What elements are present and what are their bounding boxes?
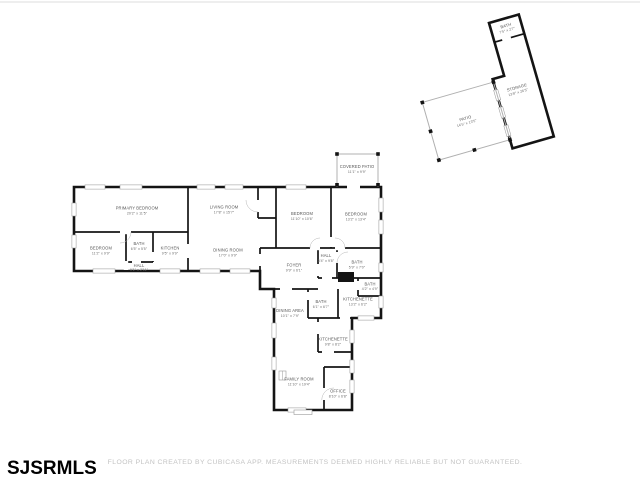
window <box>197 185 215 189</box>
room-dims: 11'2" x 9'9" <box>92 251 111 255</box>
room-name: OFFICE <box>330 389 346 394</box>
room-name: DINING ROOM <box>213 248 243 253</box>
window <box>350 330 354 343</box>
room-name: KITCHENETTE <box>343 297 373 302</box>
room-name: BATH <box>364 282 375 287</box>
room-dims: 3'4" x 9'8" <box>318 259 335 263</box>
room-name: HALL <box>321 253 332 258</box>
mls-logo: SJSRMLS <box>7 458 97 479</box>
room-dims: 4'2" x 4'9" <box>362 287 379 291</box>
room-label-bedroom-right: BEDROOM 13'2" x 13'4" <box>345 212 367 222</box>
window <box>230 269 250 273</box>
room-dims: 6'5" x 5'5" <box>131 247 148 251</box>
window <box>93 269 115 273</box>
window <box>379 296 383 308</box>
window <box>85 185 105 189</box>
room-name: FOYER <box>287 263 302 268</box>
window <box>272 298 276 308</box>
fireplace <box>338 272 354 282</box>
room-dims: 11'10" x 10'6" <box>291 217 314 221</box>
room-dims: 6'1" x 6'7" <box>313 305 330 309</box>
room-dims: 8'10" x 6'8" <box>329 394 348 398</box>
room-dims: 13'2" x 13'4" <box>346 217 367 221</box>
room-name: DINING AREA <box>276 308 304 313</box>
room-dims: 13'2" x 6'2" <box>349 302 368 306</box>
room-dims: 17'8" x 15'7" <box>214 210 235 214</box>
room-label-kitchen: KITCHEN 9'5" x 9'9" <box>161 246 180 256</box>
room-dims: 17'0" x 9'9" <box>219 253 238 257</box>
room-label-family-room: FAMILY ROOM 11'10" x 19'4" <box>284 377 314 387</box>
window <box>272 323 276 338</box>
room-name: PRIMARY BEDROOM <box>116 206 159 211</box>
room-dims: 9'1" x 2'11" <box>130 268 149 272</box>
window <box>225 185 243 189</box>
disclaimer-text: FLOOR PLAN CREATED BY CUBICASA APP. MEAS… <box>108 459 523 466</box>
room-name: COVERED PATIO <box>340 164 375 169</box>
room-dims: 5'9" x 7'0" <box>349 265 366 269</box>
window <box>72 235 76 248</box>
room-name: BATH <box>315 299 326 304</box>
window <box>350 380 354 393</box>
window <box>200 269 220 273</box>
room-name: FAMILY ROOM <box>284 377 314 382</box>
window <box>72 203 76 216</box>
room-label-office: OFFICE 8'10" x 6'8" <box>329 389 348 399</box>
room-name: KITCHEN <box>161 246 180 251</box>
room-dims: 9'8" x 8'2" <box>325 342 342 346</box>
window <box>379 263 383 272</box>
room-dims: 9'9" x 6'1" <box>286 268 303 272</box>
room-dims: 9'5" x 9'9" <box>162 251 179 255</box>
window <box>350 360 354 373</box>
room-dims: 11'10" x 19'4" <box>288 382 311 386</box>
room-label-bedroom-center: BEDROOM 11'10" x 10'6" <box>291 211 314 221</box>
room-dims: 11'1" x 9'9" <box>348 170 367 174</box>
window <box>160 269 180 273</box>
room-name: KITCHENETTE <box>318 337 348 342</box>
window <box>379 220 383 234</box>
room-name: BATH <box>133 241 144 246</box>
room-name: BEDROOM <box>291 211 313 216</box>
window <box>272 357 276 370</box>
room-name: BATH <box>351 260 362 265</box>
window <box>358 316 374 320</box>
window <box>120 185 142 189</box>
room-dims: 20'2" x 11'5" <box>127 211 148 215</box>
entry-step <box>294 410 312 415</box>
room-label-bedroom-left: BEDROOM 11'2" x 9'9" <box>90 246 112 256</box>
window <box>379 198 383 212</box>
page-background <box>0 0 640 480</box>
floor-plan-canvas: BATH 7'5" x 2'7" STORAGE 13'8" x 26'5" P… <box>0 0 640 480</box>
room-label-foyer: FOYER 9'9" x 6'1" <box>286 263 303 273</box>
room-name: LIVING ROOM <box>210 205 239 210</box>
room-dims: 10'1" x 7'9" <box>281 314 300 318</box>
room-name: BEDROOM <box>90 246 112 251</box>
window <box>286 185 306 189</box>
room-name: BEDROOM <box>345 212 367 217</box>
